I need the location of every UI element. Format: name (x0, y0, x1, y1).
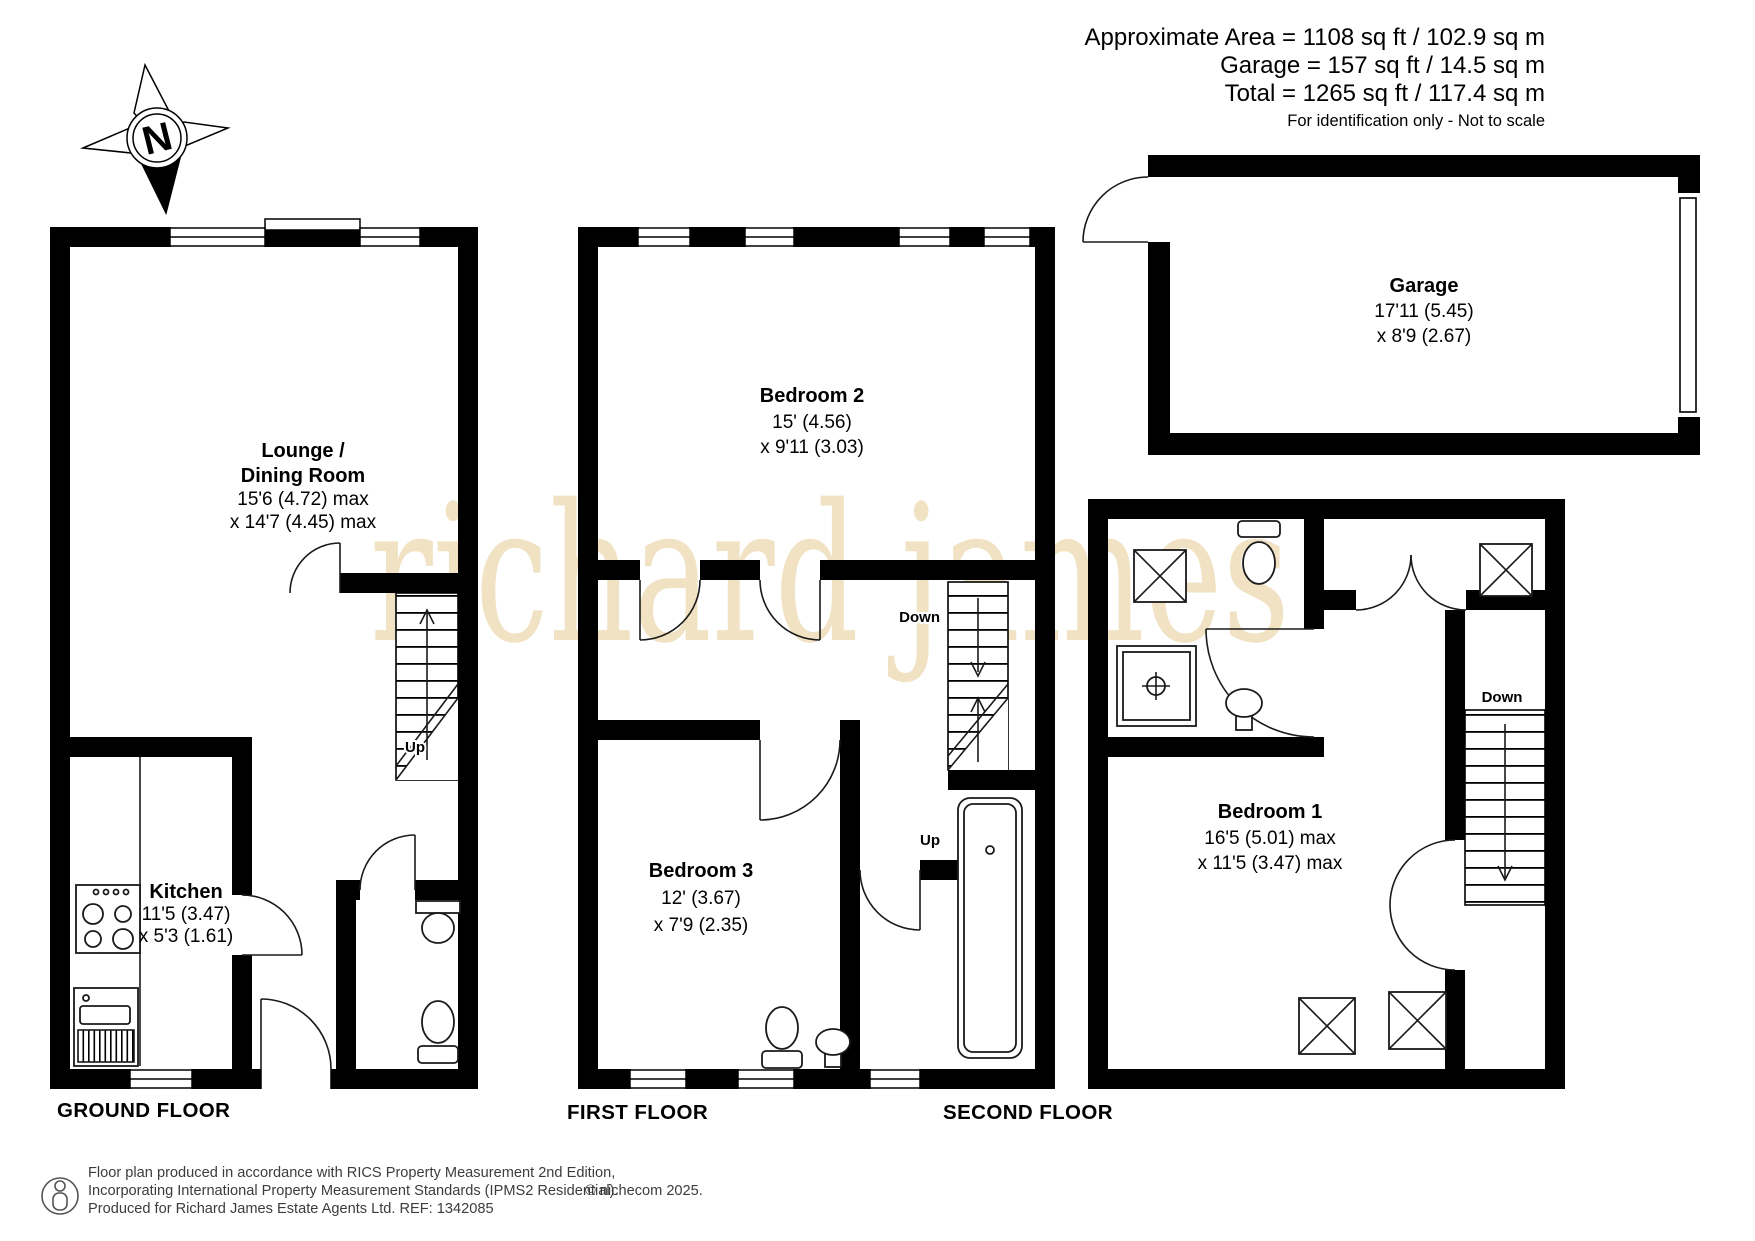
room-name: Bedroom 1 (1218, 801, 1322, 823)
window (899, 227, 950, 247)
garage-side-door (1083, 177, 1148, 242)
room-dimension: 15' (4.56) (772, 412, 852, 433)
ground-floor-stairs: Up (396, 593, 458, 780)
window (984, 227, 1030, 247)
header-area-summary: Approximate Area = 1108 sq ft / 102.9 sq… (1085, 24, 1546, 130)
wc-toilet-icon (418, 1001, 458, 1063)
bedroom3-label: Bedroom 3 12' (3.67) x 7'9 (2.35) (649, 860, 753, 936)
footer-line3: Produced for Richard James Estate Agents… (88, 1201, 494, 1217)
footer-line2: Incorporating International Property Mea… (88, 1183, 619, 1199)
footer-line1: Floor plan produced in accordance with R… (88, 1165, 615, 1181)
window (738, 1069, 794, 1089)
room-dimension: x 8'9 (2.67) (1377, 326, 1471, 347)
room-name: Bedroom 2 (760, 385, 864, 407)
garage-up-and-over-door (1672, 193, 1702, 417)
window (130, 1069, 192, 1089)
window (638, 227, 690, 247)
bath-icon (958, 798, 1022, 1058)
room-name: Garage (1390, 275, 1459, 297)
stairs-down-label: Down (1482, 689, 1523, 706)
window (630, 1069, 686, 1089)
stove-icon (76, 885, 140, 953)
approximate-area-line: Approximate Area = 1108 sq ft / 102.9 sq… (1085, 24, 1546, 51)
kitchen-label: Kitchen 11'5 (3.47) x 5'3 (1.61) (139, 881, 233, 947)
disclaimer-text: For identification only - Not to scale (1287, 112, 1545, 130)
room-name: Dining Room (241, 465, 365, 487)
second-floor-stairs: Down (1465, 689, 1545, 905)
bay-sill (265, 219, 360, 230)
window (745, 227, 794, 247)
room-dimension: 11'5 (3.47) (142, 904, 231, 925)
window (360, 227, 420, 247)
room-dimension: 16'5 (5.01) max (1204, 828, 1336, 849)
window (170, 227, 265, 247)
door-opening (261, 1069, 331, 1089)
total-area-line: Total = 1265 sq ft / 117.4 sq m (1225, 80, 1545, 107)
room-dimension: 15'6 (4.72) max (237, 489, 369, 510)
room-name: Lounge / (261, 440, 345, 462)
person-icon (42, 1178, 78, 1214)
stairs-up-label: Up (920, 832, 940, 849)
room-dimension: x 5'3 (1.61) (139, 926, 233, 947)
room-dimension: x 14'7 (4.45) max (230, 512, 377, 533)
ground-floor-label: GROUND FLOOR (57, 1099, 230, 1122)
window (870, 1069, 920, 1089)
skylight-icon (1299, 998, 1355, 1054)
garage-plan: Garage 17'11 (5.45) x 8'9 (2.67) (1083, 155, 1702, 455)
lounge-label: Lounge / Dining Room 15'6 (4.72) max x 1… (230, 440, 377, 533)
bedroom2-label: Bedroom 2 15' (4.56) x 9'11 (3.03) (760, 385, 864, 458)
footer: Floor plan produced in accordance with R… (42, 1165, 703, 1217)
pedestal-sink-icon (1226, 689, 1262, 730)
skylight-icon (1134, 550, 1186, 602)
footer-copyright: © nichecom 2025. (585, 1183, 703, 1199)
toilet-icon (762, 1007, 802, 1068)
room-name: Kitchen (149, 881, 222, 903)
garage-area-line: Garage = 157 sq ft / 14.5 sq m (1220, 52, 1545, 79)
compass-rose-icon: N (83, 65, 228, 213)
bedroom1-label: Bedroom 1 16'5 (5.01) max x 11'5 (3.47) … (1198, 801, 1343, 874)
wc-basin-icon (416, 901, 460, 943)
second-floor-label: SECOND FLOOR (943, 1101, 1113, 1124)
ground-floor-plan: Up (50, 219, 478, 1122)
stairs-up-label: Up (405, 739, 425, 756)
kitchen-sink-icon (74, 988, 138, 1066)
room-name: Bedroom 3 (649, 860, 753, 882)
first-floor-label: FIRST FLOOR (567, 1101, 708, 1124)
room-dimension: x 11'5 (3.47) max (1198, 853, 1343, 874)
room-dimension: x 7'9 (2.35) (654, 915, 748, 936)
stairs-down-label: Down (899, 609, 940, 626)
skylight-icon (1480, 544, 1532, 596)
room-dimension: x 9'11 (3.03) (760, 437, 864, 458)
shower-icon (1117, 646, 1196, 726)
floorplan-canvas: richard james Approximate Area = 1108 sq… (0, 0, 1755, 1241)
room-dimension: 17'11 (5.45) (1374, 301, 1473, 322)
skylight-icon (1389, 992, 1446, 1049)
room-dimension: 12' (3.67) (661, 888, 741, 909)
garage-label: Garage 17'11 (5.45) x 8'9 (2.67) (1374, 275, 1473, 347)
